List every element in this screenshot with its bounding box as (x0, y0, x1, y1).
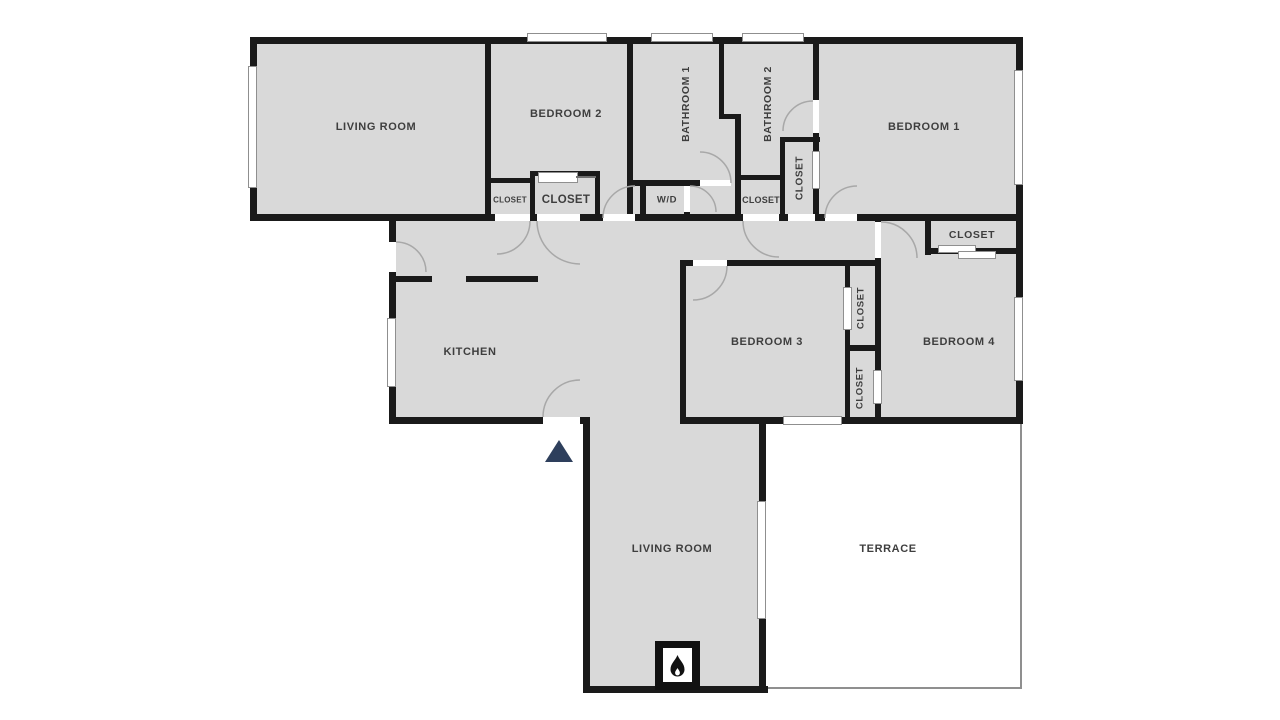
wall (735, 114, 741, 221)
door-opening (825, 214, 857, 221)
room-label-living-room-top: LIVING ROOM (336, 121, 417, 133)
window (742, 33, 804, 42)
room-label-wd: W/D (657, 195, 677, 206)
floor-plan: LIVING ROOM BEDROOM 2 BATHROOM 1 BATHROO… (0, 0, 1280, 720)
wall (627, 180, 703, 186)
room-label-bedroom-3: BEDROOM 3 (731, 336, 803, 348)
closet-door-slot (843, 287, 852, 330)
fireplace-inner (663, 648, 692, 682)
window (783, 416, 842, 425)
wall (250, 214, 396, 221)
room-label-closet-hall-small: CLOSET (493, 196, 527, 205)
room-label-bedroom-2: BEDROOM 2 (530, 108, 602, 120)
door-opening (537, 214, 580, 221)
wall (485, 178, 535, 183)
fireplace-icon (655, 641, 700, 690)
window (527, 33, 607, 42)
window (651, 33, 713, 42)
closet-door-slot (873, 370, 882, 404)
door-opening (700, 180, 731, 186)
wall (735, 175, 785, 180)
room-label-bedroom-4: BEDROOM 4 (923, 336, 995, 348)
room-label-closet-bedroom1-vertical: CLOSET (795, 156, 806, 200)
room-label-bathroom-2: BATHROOM 2 (762, 66, 774, 142)
door-opening (603, 214, 635, 221)
sliding-door-panel (958, 251, 996, 259)
wall (719, 37, 724, 119)
wall (780, 137, 785, 221)
window (248, 66, 257, 188)
closet-rod-line (576, 176, 596, 178)
door-opening (788, 214, 815, 221)
flame-icon (663, 648, 692, 682)
room-label-closet-hall-large: CLOSET (542, 194, 590, 206)
wall (583, 417, 590, 693)
room-label-closet-hall-2: CLOSET (742, 195, 780, 205)
wall (485, 37, 491, 221)
wall (845, 345, 881, 351)
wall (845, 260, 850, 424)
window (757, 501, 766, 619)
room-label-closet-bedroom1: CLOSET (949, 229, 995, 241)
wall (466, 276, 538, 282)
wall (680, 260, 686, 424)
door-opening (389, 242, 396, 272)
window (1014, 297, 1023, 381)
closet-rod (538, 172, 578, 183)
wall (389, 276, 432, 282)
door-opening (684, 186, 690, 212)
door-opening (693, 260, 727, 266)
room-label-terrace: TERRACE (859, 543, 916, 555)
wall (627, 37, 633, 221)
room-label-bathroom-1: BATHROOM 1 (680, 66, 692, 142)
wall (680, 417, 1023, 424)
room-label-closet-bedroom3: CLOSET (856, 287, 867, 329)
room-label-living-room-bottom: LIVING ROOM (632, 543, 713, 555)
room-label-kitchen: KITCHEN (443, 346, 496, 358)
closet-door-slot (812, 151, 820, 189)
door-opening (875, 222, 881, 258)
wall (250, 37, 1023, 44)
door-opening (495, 214, 530, 221)
door-opening (813, 100, 819, 133)
window (1014, 70, 1023, 185)
window (387, 318, 396, 387)
terrace-area (766, 424, 1022, 689)
north-arrow-icon (543, 438, 575, 464)
door-opening (543, 417, 580, 424)
room-label-bedroom-1: BEDROOM 1 (888, 121, 960, 133)
room-label-closet-bedroom4: CLOSET (855, 367, 866, 409)
door-opening (743, 214, 779, 221)
